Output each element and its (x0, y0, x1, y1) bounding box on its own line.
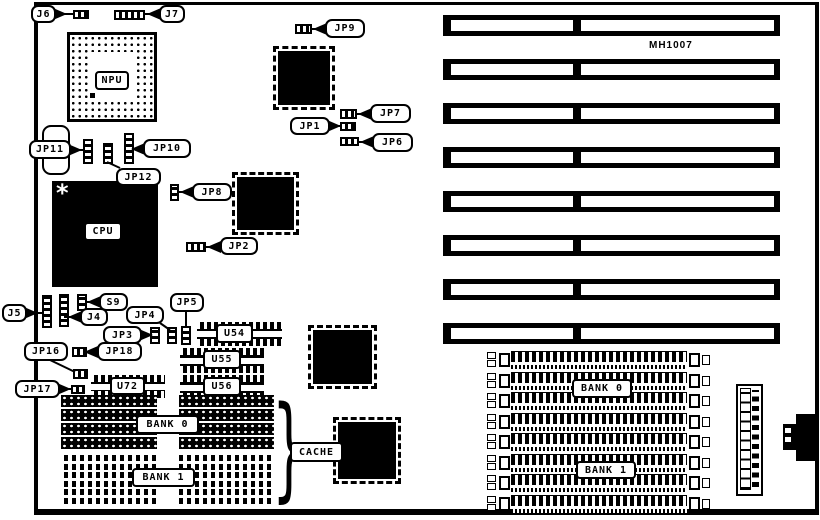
simm-clip-right (689, 353, 700, 367)
simm-clip-right (689, 497, 700, 511)
simm-mount-hole (702, 396, 710, 406)
chipset-chip-1 (273, 46, 335, 110)
isa-slot-segment (451, 328, 573, 339)
jp2-callout: JP2 (220, 237, 258, 255)
simm-mount-hole (487, 483, 496, 490)
j7-jumper (114, 10, 145, 20)
cache-bank1-label: BANK 1 (132, 468, 195, 487)
jp10-callout: JP10 (143, 139, 191, 158)
simm-socket-body (511, 495, 687, 513)
simm-clip-right (689, 374, 700, 388)
u54-label: U54 (216, 324, 253, 343)
jp5-jumper (181, 326, 191, 345)
isa-slot-segment (581, 152, 774, 163)
jp5-callout: JP5 (170, 293, 204, 312)
j4-jumper (59, 294, 69, 327)
simm-mount-hole (487, 393, 496, 400)
simm-mount-hole (487, 373, 496, 380)
jp7-callout: JP7 (370, 104, 411, 123)
simm-socket-body (511, 433, 687, 451)
simm-clip-left (499, 374, 510, 388)
simm-mount-hole (487, 504, 496, 511)
isa-slot-segment (581, 20, 774, 31)
cpu-pin1-star: * (56, 188, 69, 198)
jp6-callout: JP6 (372, 133, 413, 152)
isa-slot-segment (451, 152, 573, 163)
isa-slot-segment (581, 284, 774, 295)
jp12-callout: JP12 (116, 168, 161, 186)
cache-sram-chip (333, 417, 401, 484)
simm-mount-hole (487, 381, 496, 388)
simm-mount-hole (487, 475, 496, 482)
isa-slot (443, 15, 780, 36)
simm-socket-body (511, 413, 687, 431)
u72-label: U72 (110, 377, 145, 395)
simm-clip-right (689, 456, 700, 470)
simm-mount-hole (487, 434, 496, 441)
simm-clip-left (499, 394, 510, 408)
j4-callout: J4 (80, 308, 108, 326)
j6-jumper (73, 10, 89, 19)
motherboard-diagram: NPU J6 J7 JP11 JP10 JP12 * CPU JP9 JP7 J… (0, 0, 820, 520)
chipset-chip-2 (232, 172, 299, 235)
cache-bank0-row (179, 395, 274, 407)
simm-mount-hole (487, 463, 496, 470)
jp10-jumper (124, 133, 134, 164)
simm-mount-hole (487, 352, 496, 359)
simm-mount-hole (702, 499, 710, 509)
isa-slot-segment (581, 328, 774, 339)
jp16-callout: JP16 (24, 342, 68, 361)
u56-label: U56 (203, 377, 241, 396)
simm-bank1-label: BANK 1 (576, 461, 636, 479)
cache-bank0-row (179, 437, 274, 449)
jp11-jumper (83, 139, 93, 164)
jp17-jumper (71, 385, 85, 394)
jp6-jumper (340, 137, 359, 146)
simm-clip-right (689, 415, 700, 429)
simm-clip-right (689, 435, 700, 449)
simm-socket (487, 413, 710, 430)
simm-clip-left (499, 435, 510, 449)
isa-slot (443, 103, 780, 124)
simm-socket (487, 495, 710, 512)
isa-slot (443, 235, 780, 256)
isa-slot (443, 147, 780, 168)
simm-mount-hole (487, 360, 496, 367)
isa-slot (443, 191, 780, 212)
simm-mount-hole (487, 422, 496, 429)
jp17-callout: JP17 (15, 380, 60, 398)
simm-socket-body (511, 351, 687, 369)
isa-slot-segment (581, 64, 774, 75)
jp4-callout: JP4 (126, 306, 164, 324)
keyboard-din-pin (785, 428, 791, 433)
j6-callout: J6 (31, 5, 56, 23)
cache-bank0-label: BANK 0 (136, 415, 199, 434)
isa-slot-segment (581, 240, 774, 251)
cache-bank1-row (179, 489, 271, 504)
simm-mount-hole (487, 414, 496, 421)
cpu-label: CPU (84, 222, 122, 241)
simm-clip-right (689, 476, 700, 490)
keyboard-din-connector (796, 414, 819, 461)
simm-clip-left (499, 497, 510, 511)
cache-controller-chip (308, 325, 377, 389)
isa-slot-segment (451, 284, 573, 295)
simm-mount-hole (487, 401, 496, 408)
simm-mount-hole (487, 455, 496, 462)
isa-slot-segment (451, 240, 573, 251)
j5-callout: J5 (2, 304, 27, 322)
board-model-label: MH1007 (649, 40, 693, 51)
npu-pin1-marker (90, 93, 95, 98)
jp16-jumper (73, 369, 88, 379)
jp9-callout: JP9 (325, 19, 365, 38)
j5-jumper (42, 295, 52, 328)
simm-mount-hole (702, 376, 710, 386)
jp1-callout: JP1 (290, 117, 330, 135)
isa-slot (443, 59, 780, 80)
jp3-jumper (150, 327, 160, 344)
isa-slot-segment (451, 20, 573, 31)
isa-slot-segment (581, 196, 774, 207)
npu-label: NPU (95, 71, 129, 90)
power-connector-pins (740, 388, 751, 490)
isa-slot-segment (581, 108, 774, 119)
cache-bank1-row (64, 489, 157, 504)
jp8-jumper (170, 184, 179, 201)
simm-clip-left (499, 353, 510, 367)
simm-mount-hole (702, 417, 710, 427)
cache-callout: CACHE (290, 442, 343, 462)
isa-slot-segment (451, 64, 573, 75)
simm-mount-hole (487, 496, 496, 503)
isa-slot (443, 279, 780, 300)
board-edge-left (34, 2, 38, 515)
jp18-jumper (72, 347, 87, 357)
jp2-jumper (186, 242, 206, 252)
simm-socket (487, 433, 710, 450)
simm-clip-left (499, 456, 510, 470)
isa-slot-segment (451, 108, 573, 119)
simm-clip-left (499, 476, 510, 490)
cache-bank0-row (61, 395, 157, 407)
isa-slot-segment (451, 196, 573, 207)
simm-mount-hole (702, 478, 710, 488)
keyboard-din-pin (785, 437, 791, 442)
simm-mount-hole (487, 442, 496, 449)
jp11-callout: JP11 (29, 140, 71, 159)
cache-bank0-row (61, 437, 157, 449)
simm-socket (487, 351, 710, 368)
jp1-jumper (340, 122, 356, 131)
jp4-jumper (167, 327, 177, 344)
jp8-callout: JP8 (192, 183, 232, 201)
j7-callout: J7 (159, 5, 185, 23)
simm-mount-hole (702, 355, 710, 365)
jp18-callout: JP18 (97, 342, 142, 361)
power-connector (736, 384, 763, 496)
simm-clip-left (499, 415, 510, 429)
board-edge-top (34, 2, 819, 5)
power-connector-pins (752, 390, 759, 487)
jp7-jumper (340, 109, 357, 119)
simm-bank0-label: BANK 0 (572, 379, 632, 398)
jp9-jumper (295, 24, 312, 34)
simm-clip-right (689, 394, 700, 408)
simm-mount-hole (702, 437, 710, 447)
jp12-jumper (103, 143, 113, 164)
simm-mount-hole (702, 458, 710, 468)
u55-label: U55 (203, 350, 241, 369)
isa-slot (443, 323, 780, 344)
